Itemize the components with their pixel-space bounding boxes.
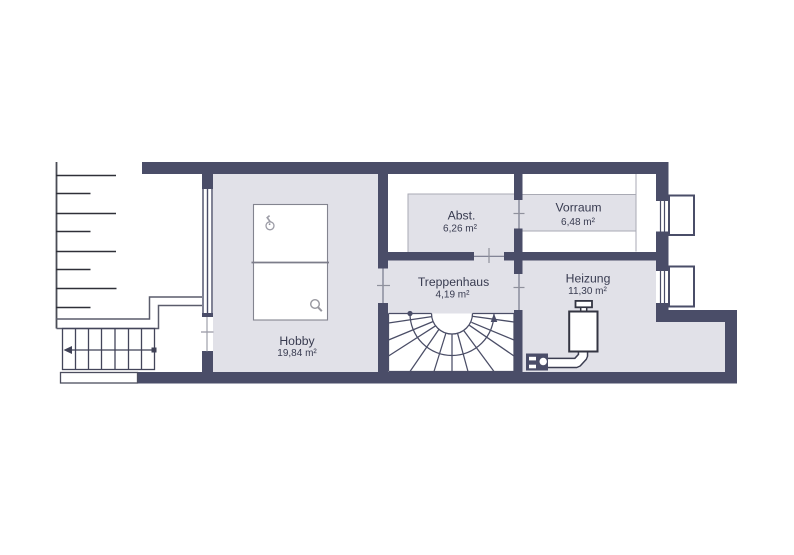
svg-text:6,26 m²: 6,26 m² — [443, 224, 478, 235]
svg-text:Heizung: Heizung — [566, 272, 611, 286]
svg-text:6,48 m²: 6,48 m² — [561, 217, 596, 228]
svg-text:Hobby: Hobby — [279, 334, 315, 348]
svg-text:Vorraum: Vorraum — [555, 201, 601, 215]
svg-text:4,19 m²: 4,19 m² — [436, 290, 471, 301]
svg-text:Abst.: Abst. — [448, 209, 476, 223]
svg-text:Treppenhaus: Treppenhaus — [418, 275, 489, 289]
svg-text:11,30 m²: 11,30 m² — [568, 286, 607, 297]
svg-text:19,84 m²: 19,84 m² — [277, 348, 317, 359]
